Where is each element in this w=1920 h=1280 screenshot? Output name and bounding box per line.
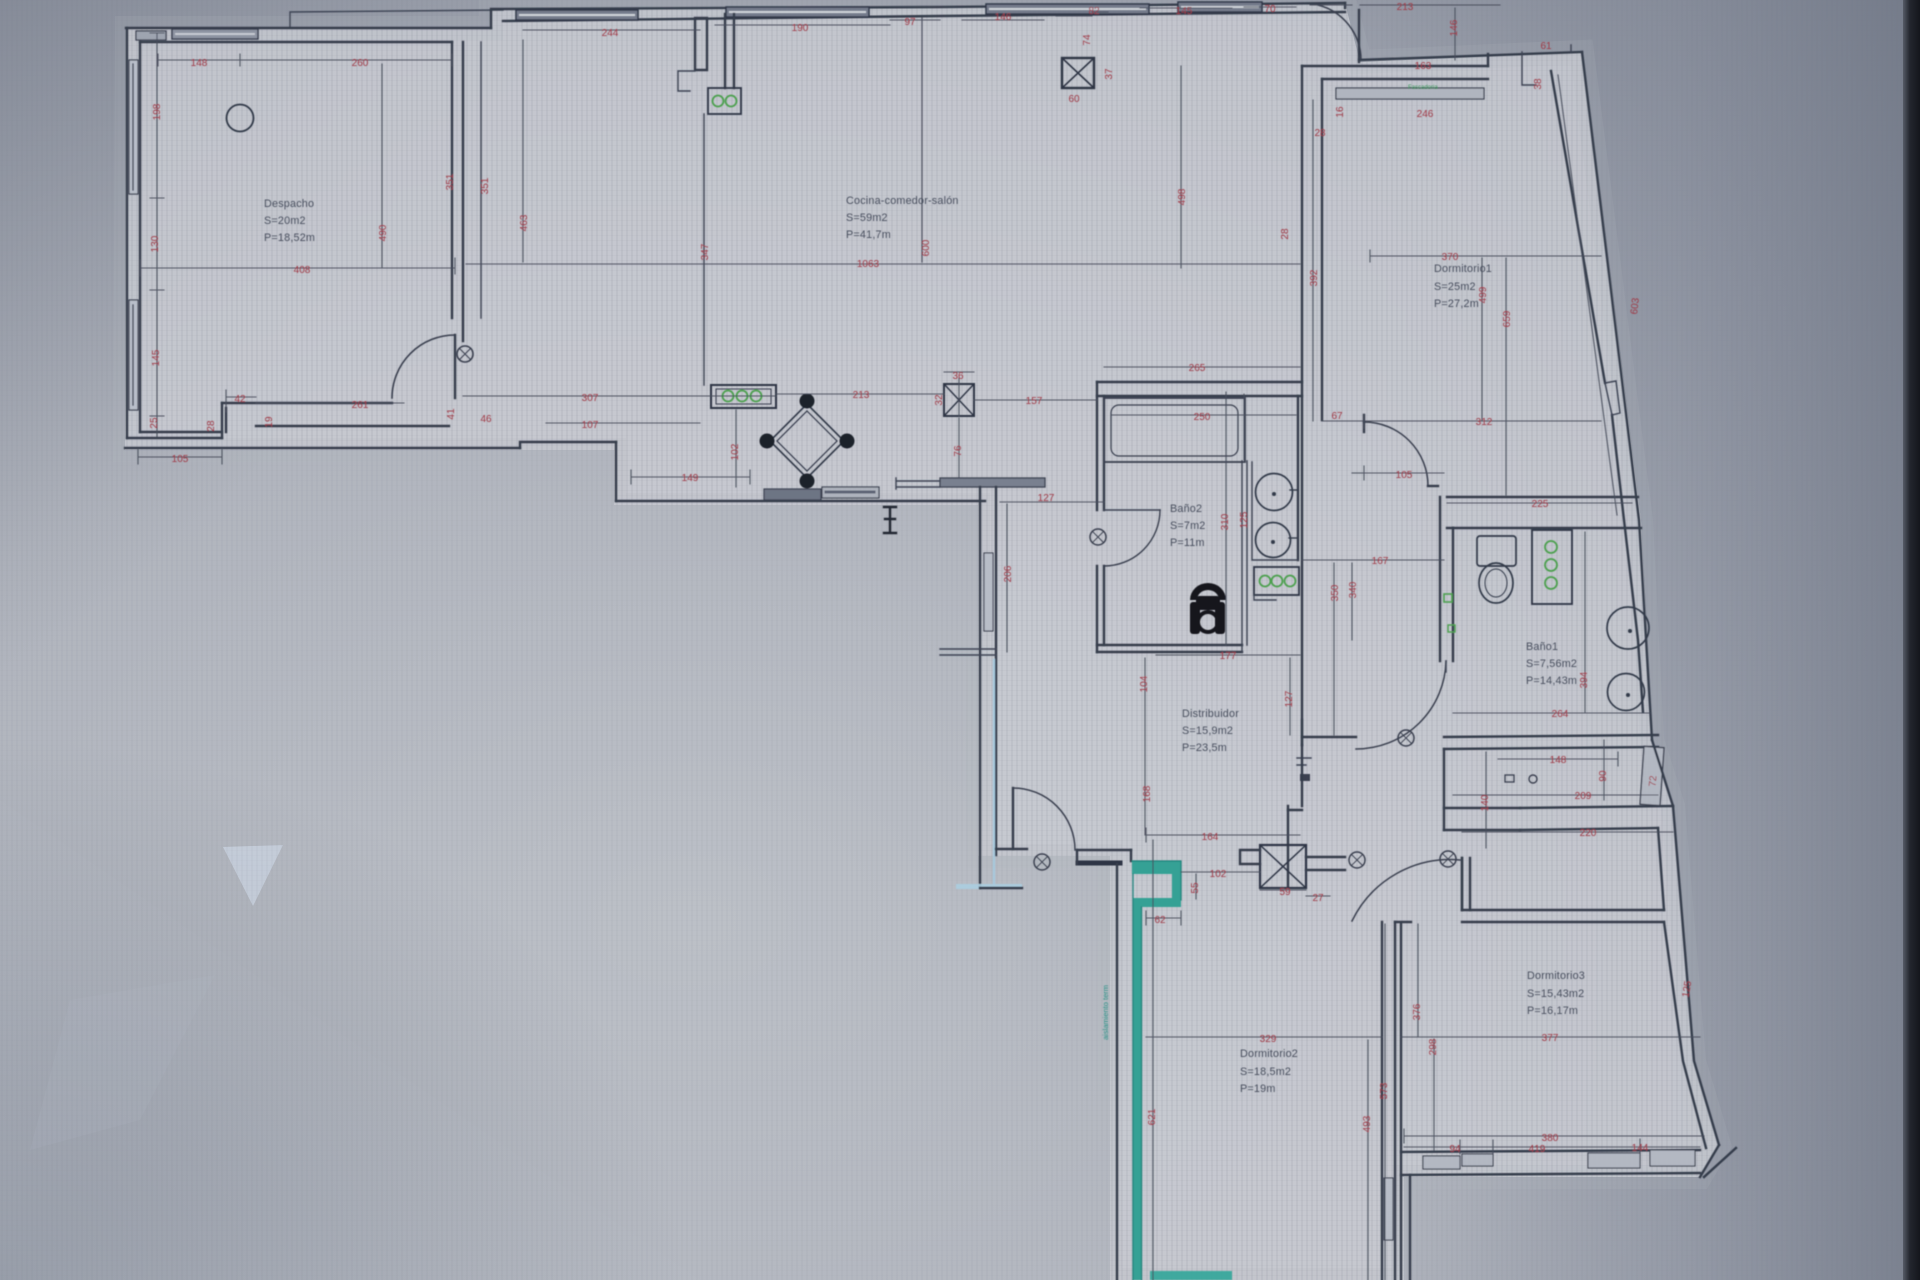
svg-text:603: 603 [1629,297,1642,315]
svg-text:105: 105 [1396,470,1413,481]
svg-text:107: 107 [582,420,599,431]
svg-text:144: 144 [1632,1143,1649,1154]
svg-text:164: 164 [1202,832,1219,843]
svg-text:S=18,5m2: S=18,5m2 [1240,1066,1291,1078]
svg-text:36: 36 [952,371,964,382]
svg-text:32: 32 [934,394,945,406]
svg-text:62: 62 [1154,915,1166,926]
svg-text:74: 74 [1082,34,1093,46]
svg-text:Baño1: Baño1 [1526,641,1558,653]
svg-text:225: 225 [1532,499,1549,510]
svg-text:310: 310 [1220,513,1231,530]
svg-text:163: 163 [1415,61,1432,72]
svg-text:28: 28 [1280,228,1291,240]
svg-text:157: 157 [1026,396,1043,407]
svg-text:573: 573 [1379,1082,1390,1099]
svg-text:S=7,56m2: S=7,56m2 [1526,658,1577,670]
svg-text:600: 600 [921,239,932,256]
svg-text:490: 490 [378,224,389,241]
svg-text:102: 102 [1210,869,1227,880]
svg-text:206: 206 [1003,565,1014,582]
svg-text:82: 82 [1088,6,1100,17]
svg-text:130: 130 [150,235,161,252]
svg-text:55: 55 [1190,882,1201,894]
svg-text:102: 102 [730,443,741,460]
svg-text:659: 659 [1502,310,1513,327]
svg-text:25: 25 [149,417,160,429]
svg-text:Distribuidor: Distribuidor [1182,708,1239,720]
svg-text:499: 499 [1478,286,1489,303]
svg-text:16: 16 [1335,106,1346,118]
svg-text:P=11m: P=11m [1170,537,1205,549]
svg-text:Cocina-comedor-salón: Cocina-comedor-salón [846,195,959,207]
svg-text:213: 213 [853,390,870,401]
svg-text:P=27,2m: P=27,2m [1434,298,1479,310]
svg-text:329: 329 [1260,1034,1277,1045]
svg-text:220: 220 [1580,828,1597,839]
svg-text:Dormitorio3: Dormitorio3 [1527,970,1585,982]
svg-text:265: 265 [1189,363,1206,374]
svg-text:167: 167 [1372,556,1389,567]
svg-text:94: 94 [1449,1144,1461,1155]
svg-text:S=59m2: S=59m2 [846,212,888,224]
svg-text:S=25m2: S=25m2 [1434,281,1476,293]
svg-text:1063: 1063 [857,259,880,270]
svg-text:261: 261 [352,400,369,411]
svg-text:76: 76 [953,445,964,457]
svg-text:19: 19 [264,416,275,428]
svg-text:S=15,9m2: S=15,9m2 [1182,725,1233,737]
svg-text:27: 27 [1312,893,1324,904]
svg-text:60: 60 [1068,94,1080,105]
svg-text:350: 350 [1330,584,1341,601]
svg-text:380: 380 [1542,1133,1559,1144]
svg-text:312: 312 [1476,417,1493,428]
svg-text:392: 392 [1309,269,1320,286]
svg-text:Dormitorio2: Dormitorio2 [1240,1048,1298,1060]
svg-text:149: 149 [682,473,699,484]
svg-text:104: 104 [1139,675,1150,692]
svg-text:264: 264 [1552,709,1569,720]
svg-text:246: 246 [1417,109,1434,120]
svg-text:340: 340 [1348,581,1359,598]
svg-text:463: 463 [519,214,530,231]
svg-text:S=7m2: S=7m2 [1170,520,1206,532]
svg-text:38: 38 [1533,78,1544,90]
svg-text:307: 307 [582,393,599,404]
svg-text:127: 127 [1284,690,1295,707]
svg-text:67: 67 [1331,411,1343,422]
svg-text:146: 146 [995,12,1012,23]
svg-text:621: 621 [1147,1108,1158,1125]
svg-text:145: 145 [1176,6,1193,17]
svg-text:P=23,5m: P=23,5m [1182,742,1227,754]
svg-text:46: 46 [480,414,492,425]
svg-text:105: 105 [172,454,189,465]
svg-text:198: 198 [152,103,163,120]
svg-text:244: 244 [602,28,619,39]
svg-text:347: 347 [700,243,711,260]
svg-text:41: 41 [446,408,457,420]
svg-text:213: 213 [1397,2,1414,13]
svg-text:P=16,17m: P=16,17m [1527,1005,1578,1017]
svg-text:177: 177 [1220,651,1237,662]
svg-text:493: 493 [1362,1115,1373,1132]
svg-text:140: 140 [1480,794,1491,811]
svg-text:376: 376 [1412,1003,1423,1020]
svg-text:146: 146 [1449,19,1460,36]
svg-text:28: 28 [206,420,217,432]
svg-text:P=18,52m: P=18,52m [264,232,315,244]
svg-text:Despacho: Despacho [264,198,314,210]
svg-text:351: 351 [480,177,491,194]
svg-text:370: 370 [1442,252,1459,263]
svg-text:61: 61 [1540,41,1552,52]
svg-text:70: 70 [1264,4,1276,15]
svg-text:190: 190 [792,23,809,34]
svg-text:168: 168 [1142,785,1153,802]
svg-text:P=19m: P=19m [1240,1083,1276,1095]
svg-text:P=41,7m: P=41,7m [846,229,891,241]
svg-text:209: 209 [1575,791,1592,802]
svg-text:Fascadoria: Fascadoria [1408,85,1438,91]
svg-text:148: 148 [1550,755,1567,766]
svg-text:498: 498 [1177,188,1188,205]
svg-text:145: 145 [151,349,162,366]
svg-text:408: 408 [294,265,311,276]
svg-text:90: 90 [1598,770,1609,782]
svg-text:97: 97 [904,17,916,28]
svg-text:aislamiento term: aislamiento term [1101,985,1110,1040]
svg-text:298: 298 [1428,1038,1439,1055]
svg-text:S=20m2: S=20m2 [264,215,306,227]
svg-text:37: 37 [1104,68,1115,80]
svg-text:125: 125 [1239,511,1250,528]
svg-text:394: 394 [1579,671,1590,688]
svg-text:59: 59 [1279,887,1291,898]
svg-text:S=15,43m2: S=15,43m2 [1527,988,1584,1000]
svg-text:P=14,43m: P=14,43m [1526,675,1577,687]
svg-text:28: 28 [1314,128,1326,139]
svg-text:42: 42 [234,394,246,405]
svg-text:260: 260 [352,58,369,69]
svg-text:Baño2: Baño2 [1170,503,1202,515]
svg-text:351: 351 [445,173,456,190]
svg-text:419: 419 [1529,1144,1546,1155]
svg-text:377: 377 [1542,1033,1559,1044]
svg-text:72: 72 [1648,775,1660,787]
svg-text:250: 250 [1194,412,1211,423]
svg-text:148: 148 [191,58,208,69]
svg-text:Dormitorio1: Dormitorio1 [1434,263,1492,275]
svg-text:127: 127 [1038,493,1055,504]
